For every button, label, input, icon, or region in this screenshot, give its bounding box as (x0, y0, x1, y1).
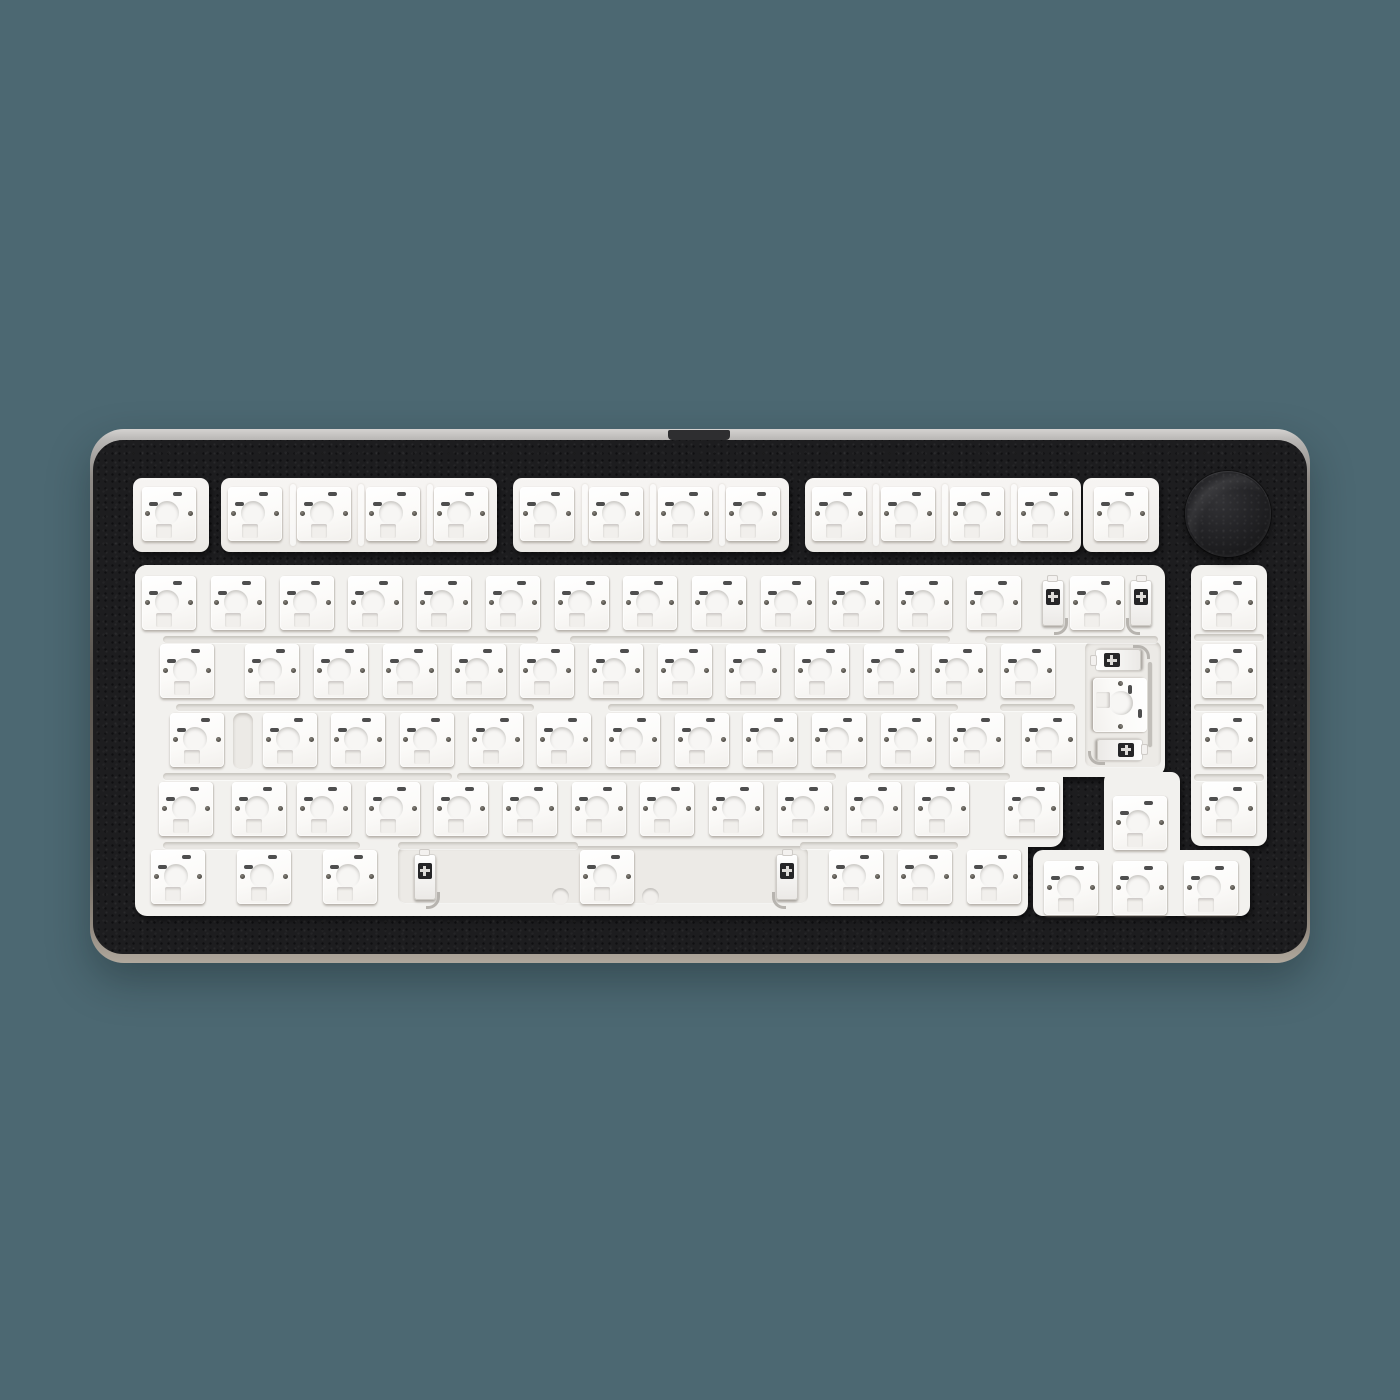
hotswap-contact (360, 668, 365, 673)
led-window-notch (448, 524, 464, 538)
hotswap-socket-equals (967, 576, 1021, 630)
switch-pin-slot (963, 649, 972, 653)
switch-pin-slot (843, 718, 852, 722)
hotswap-contact (729, 511, 734, 516)
switch-stem-hole (825, 501, 849, 525)
plate-relief-groove (163, 636, 538, 643)
switch-stem-hole (1215, 727, 1239, 751)
hotswap-contact (798, 668, 803, 673)
hotswap-contact (235, 806, 240, 811)
hotswap-contact (1021, 511, 1026, 516)
led-window-notch (1198, 898, 1214, 912)
led-window-notch (878, 681, 894, 695)
hotswap-socket-num7 (623, 576, 677, 630)
led-window-notch (534, 681, 550, 695)
switch-stem-hole (593, 864, 617, 888)
switch-stem-hole (327, 658, 351, 682)
switch-pin-slot (483, 649, 492, 653)
hotswap-contact (480, 511, 485, 516)
hotswap-socket-n (640, 782, 694, 836)
led-window-notch (895, 524, 911, 538)
switch-stem-hole (465, 658, 489, 682)
plate-relief-groove (608, 704, 958, 711)
led-window-notch (1036, 750, 1052, 764)
hotswap-socket-k (743, 713, 797, 767)
switch-pin-slot (912, 492, 921, 496)
hotswap-contact (377, 737, 382, 742)
stabilizer-nub (1090, 655, 1097, 666)
switch-stem-hole (808, 658, 832, 682)
hotswap-contact (1159, 885, 1164, 890)
switch-pin-slot (654, 581, 663, 585)
spacebar-stabilizer-clip (776, 854, 798, 900)
switch-stem-hole (980, 590, 1004, 614)
switch-pin-slot (568, 718, 577, 722)
hotswap-contact (437, 511, 442, 516)
switch-pin-slot (611, 855, 620, 859)
hotswap-contact (901, 600, 906, 605)
hotswap-contact (1205, 737, 1210, 742)
hotswap-contact (1064, 511, 1069, 516)
hotswap-contact (815, 737, 820, 742)
switch-stem-hole (791, 796, 815, 820)
led-window-notch (672, 681, 688, 695)
f-island-seam (1011, 484, 1017, 546)
switch-pin-slot (1144, 801, 1153, 805)
switch-pin-slot (517, 581, 526, 585)
hotswap-socket-f8 (726, 487, 780, 541)
hotswap-contact (1140, 511, 1145, 516)
hotswap-socket-pagedown (1202, 713, 1256, 767)
hotswap-socket-num3 (348, 576, 402, 630)
hotswap-socket-i (726, 644, 780, 698)
switch-stem-hole (619, 727, 643, 751)
hotswap-contact (832, 874, 837, 879)
hotswap-contact (850, 806, 855, 811)
switch-pin-slot (551, 649, 560, 653)
plate-relief-groove (176, 704, 534, 711)
switch-pin-slot (190, 787, 199, 791)
hotswap-socket-t (520, 644, 574, 698)
hotswap-socket-up (1113, 796, 1167, 850)
hotswap-contact (961, 806, 966, 811)
switch-pin-slot (173, 581, 182, 585)
hotswap-contact (205, 806, 210, 811)
hotswap-socket-lwin (237, 850, 291, 904)
switch-stem-hole (842, 864, 866, 888)
hotswap-socket-down (1113, 861, 1167, 915)
hotswap-contact (704, 511, 709, 516)
switch-pin-slot (1233, 718, 1242, 722)
hotswap-contact (970, 600, 975, 605)
switch-pin-slot (860, 855, 869, 859)
hotswap-contact (635, 511, 640, 516)
hotswap-contact (583, 874, 588, 879)
switch-stem-hole (860, 796, 884, 820)
hotswap-contact (566, 511, 571, 516)
led-window-notch (246, 819, 262, 833)
hotswap-contact (772, 668, 777, 673)
stabilizer-nub (1136, 575, 1147, 582)
led-window-notch (345, 750, 361, 764)
hotswap-contact (970, 874, 975, 879)
switch-stem-hole (1109, 691, 1133, 715)
led-window-notch (809, 681, 825, 695)
hotswap-contact (446, 737, 451, 742)
hotswap-contact (173, 737, 178, 742)
hotswap-socket-num2 (280, 576, 334, 630)
led-window-notch (912, 887, 928, 901)
switch-pin-slot (843, 492, 852, 496)
hotswap-contact (1051, 806, 1056, 811)
stabilizer-slot (1104, 653, 1120, 667)
f-island-seam (358, 484, 364, 546)
hotswap-contact (300, 511, 305, 516)
plate-relief-groove (1194, 774, 1264, 781)
f-island-seam (582, 484, 588, 546)
switch-stem-hole (705, 590, 729, 614)
hotswap-contact (635, 668, 640, 673)
switch-stem-hole (739, 658, 763, 682)
switch-stem-hole (928, 796, 952, 820)
switch-pin-slot (1036, 787, 1045, 791)
switch-stem-hole (155, 501, 179, 525)
switch-stem-hole (1215, 796, 1239, 820)
hotswap-contact (369, 511, 374, 516)
hotswap-contact (540, 737, 545, 742)
led-window-notch (156, 524, 172, 538)
switch-stem-hole (653, 796, 677, 820)
hotswap-socket-j (675, 713, 729, 767)
hotswap-contact (781, 806, 786, 811)
hotswap-contact (1248, 806, 1253, 811)
switch-pin-slot (1049, 492, 1058, 496)
hotswap-socket-lbracket (932, 644, 986, 698)
hotswap-contact (1187, 885, 1192, 890)
hotswap-socket-f9 (812, 487, 866, 541)
stabilizer-nub (1141, 744, 1148, 755)
switch-stem-hole (671, 501, 695, 525)
switch-pin-slot (1233, 581, 1242, 585)
hotswap-contact (935, 668, 940, 673)
hotswap-contact (652, 737, 657, 742)
switch-pin-slot (603, 787, 612, 791)
hotswap-socket-e (383, 644, 437, 698)
plate-relief-groove (868, 773, 1010, 780)
hotswap-contact (841, 668, 846, 673)
led-window-notch (251, 887, 267, 901)
hotswap-contact (1205, 806, 1210, 811)
hotswap-contact (412, 511, 417, 516)
f-island-seam (290, 484, 296, 546)
hotswap-contact (661, 668, 666, 673)
led-window-notch (1216, 613, 1232, 627)
hotswap-contact (592, 511, 597, 516)
hotswap-contact (197, 874, 202, 879)
switch-stem-hole (336, 864, 360, 888)
hotswap-socket-rbracket (1001, 644, 1055, 698)
switch-stem-hole (447, 501, 471, 525)
switch-pin-slot (263, 787, 272, 791)
hotswap-socket-l (812, 713, 866, 767)
led-window-notch (740, 681, 756, 695)
hotswap-contact (824, 806, 829, 811)
led-window-notch (861, 819, 877, 833)
led-window-notch (337, 887, 353, 901)
switch-pin-slot (182, 855, 191, 859)
switch-pin-slot (946, 787, 955, 791)
hotswap-contact (755, 806, 760, 811)
led-window-notch (964, 750, 980, 764)
hotswap-socket-o (795, 644, 849, 698)
led-window-notch (843, 613, 859, 627)
switch-stem-hole (1035, 727, 1059, 751)
switch-stem-hole (1126, 875, 1150, 899)
hotswap-contact (145, 511, 150, 516)
switch-pin-slot (1215, 866, 1224, 870)
plate-relief-groove (570, 636, 950, 643)
hotswap-contact (1073, 600, 1078, 605)
led-window-notch (603, 524, 619, 538)
hotswap-contact (583, 737, 588, 742)
hotswap-socket-lshift (159, 782, 213, 836)
led-window-notch (1019, 819, 1035, 833)
switch-pin-slot (1144, 866, 1153, 870)
caps-side-plate-slot (233, 713, 253, 770)
led-window-notch (757, 750, 773, 764)
led-window-notch (517, 819, 533, 833)
led-window-notch (895, 750, 911, 764)
led-window-notch (775, 613, 791, 627)
hotswap-contact (369, 806, 374, 811)
led-window-notch (156, 613, 172, 627)
switch-pin-slot (1233, 649, 1242, 653)
switch-pin-slot (998, 855, 1007, 859)
switch-pin-slot (354, 855, 363, 859)
switch-pin-slot (500, 718, 509, 722)
switch-pin-slot (878, 787, 887, 791)
hotswap-socket-minus (898, 576, 952, 630)
switch-stem-hole (155, 590, 179, 614)
switch-pin-slot (1233, 787, 1242, 791)
hotswap-contact (875, 600, 880, 605)
hotswap-socket-del (1094, 487, 1148, 541)
switch-pin-slot (448, 581, 457, 585)
hotswap-contact (832, 600, 837, 605)
switch-stem-hole (739, 501, 763, 525)
hotswap-contact (712, 806, 717, 811)
hotswap-contact (351, 600, 356, 605)
stabilizer-slot (1118, 743, 1134, 757)
f-island-seam (650, 484, 656, 546)
hotswap-socket-iso-enter (1093, 678, 1147, 732)
switch-stem-hole (396, 658, 420, 682)
hotswap-contact (944, 874, 949, 879)
hotswap-contact (772, 511, 777, 516)
switch-pin-slot (860, 581, 869, 585)
led-window-notch (294, 613, 310, 627)
switch-stem-hole (241, 501, 265, 525)
hotswap-contact (145, 600, 150, 605)
switch-stem-hole (963, 727, 987, 751)
hotswap-contact (738, 600, 743, 605)
plate-relief-groove (163, 842, 360, 849)
switch-stem-hole (825, 727, 849, 751)
hotswap-contact (326, 600, 331, 605)
hotswap-contact (1205, 600, 1210, 605)
hotswap-socket-caps (170, 713, 224, 767)
f-island-seam (719, 484, 725, 546)
switch-pin-slot (1125, 492, 1134, 496)
hotswap-contact (1159, 820, 1164, 825)
hotswap-socket-f12 (1018, 487, 1072, 541)
hotswap-socket-v (503, 782, 557, 836)
switch-pin-slot (1075, 866, 1084, 870)
switch-stem-hole (568, 590, 592, 614)
hotswap-socket-semicolon (881, 713, 935, 767)
hotswap-contact (1116, 600, 1121, 605)
hotswap-contact (1047, 885, 1052, 890)
switch-stem-hole (1197, 875, 1221, 899)
switch-stem-hole (482, 727, 506, 751)
hotswap-socket-slash (915, 782, 969, 836)
hotswap-contact (326, 874, 331, 879)
hotswap-contact (1013, 874, 1018, 879)
hotswap-contact (807, 600, 812, 605)
hotswap-contact (721, 737, 726, 742)
spacebar-wire-hole (642, 888, 659, 905)
led-window-notch (483, 750, 499, 764)
switch-pin-slot (1138, 709, 1142, 718)
switch-pin-slot (826, 649, 835, 653)
switch-pin-slot (740, 787, 749, 791)
switch-pin-slot (981, 492, 990, 496)
plate-relief-groove (398, 842, 578, 849)
led-window-notch (466, 681, 482, 695)
hotswap-socket-u (658, 644, 712, 698)
hotswap-contact (789, 737, 794, 742)
led-window-notch (534, 524, 550, 538)
switch-pin-slot (276, 649, 285, 653)
switch-stem-hole (1107, 501, 1131, 525)
hotswap-contact (609, 737, 614, 742)
switch-pin-slot (1053, 718, 1062, 722)
stabilizer-insert-cross (423, 866, 426, 876)
hotswap-contact (532, 600, 537, 605)
hotswap-socket-grave (142, 576, 196, 630)
switch-stem-hole (379, 501, 403, 525)
led-window-notch (1216, 819, 1232, 833)
hotswap-contact (489, 600, 494, 605)
switch-stem-hole (245, 796, 269, 820)
hotswap-socket-z (297, 782, 351, 836)
hotswap-contact (746, 737, 751, 742)
switch-pin-slot (637, 718, 646, 722)
led-window-notch (1127, 833, 1143, 847)
led-window-notch (594, 887, 610, 901)
plate-relief-groove (1000, 704, 1075, 711)
hotswap-socket-y (589, 644, 643, 698)
switch-pin-slot (981, 718, 990, 722)
switch-stem-hole (602, 658, 626, 682)
hotswap-contact (188, 600, 193, 605)
switch-pin-slot (328, 787, 337, 791)
switch-stem-hole (911, 864, 935, 888)
led-window-notch (689, 750, 705, 764)
switch-stem-hole (430, 590, 454, 614)
hotswap-contact (626, 600, 631, 605)
hotswap-contact (927, 511, 932, 516)
switch-stem-hole (1018, 796, 1042, 820)
hotswap-contact (154, 874, 159, 879)
switch-pin-slot (397, 787, 406, 791)
hotswap-socket-tab (160, 644, 214, 698)
switch-pin-slot (774, 718, 783, 722)
led-window-notch (1216, 681, 1232, 695)
switch-pin-slot (294, 718, 303, 722)
hotswap-socket-b (572, 782, 626, 836)
hotswap-contact (403, 737, 408, 742)
hotswap-contact (455, 668, 460, 673)
hotswap-socket-p (864, 644, 918, 698)
hotswap-contact (162, 806, 167, 811)
hotswap-contact (815, 511, 820, 516)
switch-stem-hole (224, 590, 248, 614)
hotswap-socket-num4 (417, 576, 471, 630)
hotswap-contact (601, 600, 606, 605)
switch-pin-slot (201, 718, 210, 722)
hotswap-contact (412, 806, 417, 811)
switch-stem-hole (361, 590, 385, 614)
hotswap-contact (1068, 737, 1073, 742)
switch-pin-slot (465, 492, 474, 496)
hotswap-socket-x (366, 782, 420, 836)
hotswap-socket-fn (898, 850, 952, 904)
hotswap-socket-rshift (1005, 782, 1059, 836)
hotswap-socket-w (314, 644, 368, 698)
hotswap-contact (1205, 668, 1210, 673)
hotswap-contact (1013, 600, 1018, 605)
hotswap-contact (480, 806, 485, 811)
hotswap-contact (506, 806, 511, 811)
hotswap-contact (875, 874, 880, 879)
hotswap-contact (343, 806, 348, 811)
hotswap-socket-c (434, 782, 488, 836)
hotswap-contact (918, 806, 923, 811)
switch-pin-slot (792, 581, 801, 585)
stabilizer-nub (1047, 575, 1058, 582)
hotswap-socket-r (452, 644, 506, 698)
hotswap-socket-right (1184, 861, 1238, 915)
spacebar-wire-hole (552, 888, 569, 905)
stabilizer-nub (419, 849, 430, 856)
hotswap-contact (216, 737, 221, 742)
hotswap-contact (944, 600, 949, 605)
hotswap-socket-ralt (829, 850, 883, 904)
switch-stem-hole (877, 658, 901, 682)
hotswap-contact (498, 668, 503, 673)
hotswap-contact (910, 668, 915, 673)
switch-stem-hole (963, 501, 987, 525)
switch-pin-slot (757, 649, 766, 653)
switch-stem-hole (379, 796, 403, 820)
switch-stem-hole (945, 658, 969, 682)
stabilizer-insert-cross (1051, 592, 1054, 602)
hotswap-contact (188, 511, 193, 516)
plate-relief-groove (800, 842, 958, 849)
hotswap-socket-home (1202, 576, 1256, 630)
switch-stem-hole (293, 590, 317, 614)
